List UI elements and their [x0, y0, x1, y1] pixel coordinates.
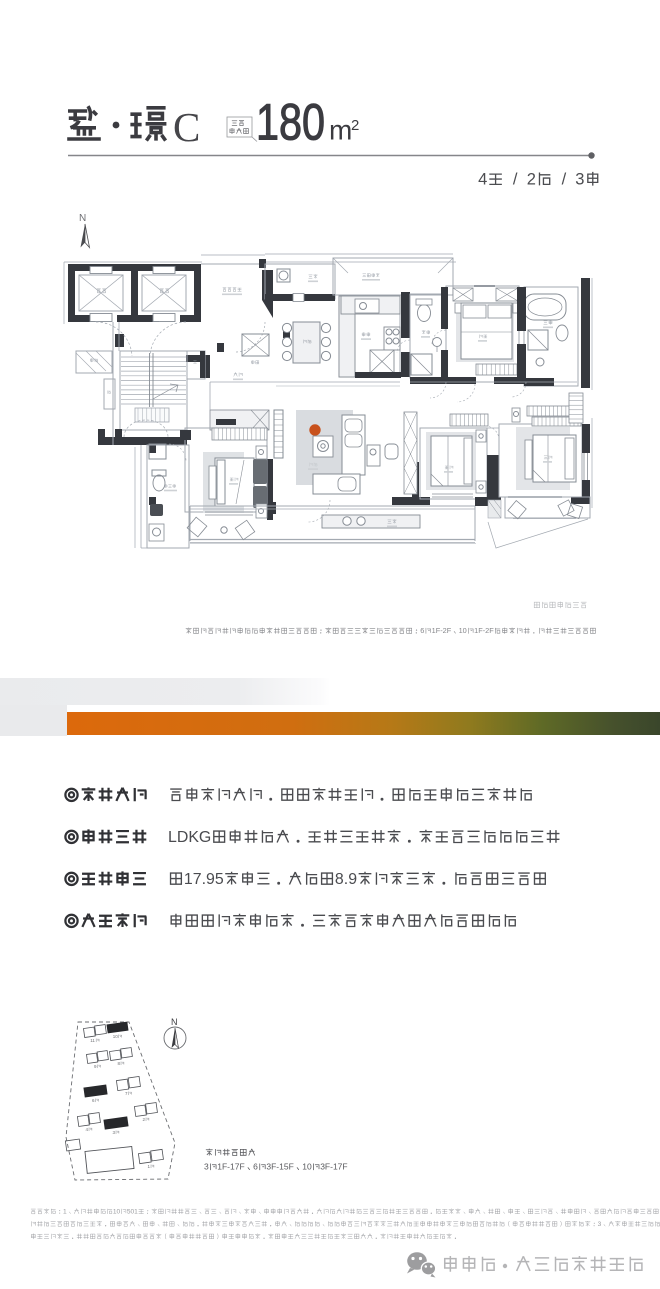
svg-text:8.9: 8.9: [335, 871, 357, 888]
svg-text:180: 180: [256, 94, 325, 151]
svg-text:N: N: [171, 1017, 178, 1027]
svg-text:6: 6: [420, 626, 424, 635]
svg-text:3F-15F: 3F-15F: [266, 1162, 293, 1172]
svg-text:1: 1: [63, 1209, 67, 1216]
svg-text:/: /: [513, 170, 518, 188]
svg-text:3: 3: [575, 170, 584, 188]
svg-text:3F-17F: 3F-17F: [320, 1162, 347, 1172]
svg-text:10: 10: [113, 1034, 119, 1039]
svg-text:C: C: [173, 104, 200, 150]
svg-text:10: 10: [302, 1162, 312, 1172]
svg-text:LDKG: LDKG: [168, 829, 211, 846]
svg-text:1F-2F: 1F-2F: [474, 626, 494, 635]
svg-text:2: 2: [351, 117, 359, 134]
svg-text:10: 10: [459, 626, 467, 635]
svg-text:3: 3: [204, 1162, 209, 1172]
svg-text:10: 10: [113, 1209, 121, 1216]
svg-text:6: 6: [253, 1162, 258, 1172]
svg-text:1F-17F: 1F-17F: [217, 1162, 244, 1172]
svg-text:2: 2: [527, 170, 536, 188]
svg-text:m: m: [329, 115, 352, 146]
svg-text:3: 3: [598, 1221, 602, 1228]
svg-text:17.95: 17.95: [184, 871, 224, 888]
svg-text:/: /: [562, 170, 567, 188]
svg-text:N: N: [79, 213, 86, 224]
svg-text:501: 501: [127, 1209, 138, 1216]
svg-text:11: 11: [90, 1038, 95, 1043]
svg-text:4: 4: [478, 170, 487, 188]
svg-text:1F-2F: 1F-2F: [432, 626, 452, 635]
